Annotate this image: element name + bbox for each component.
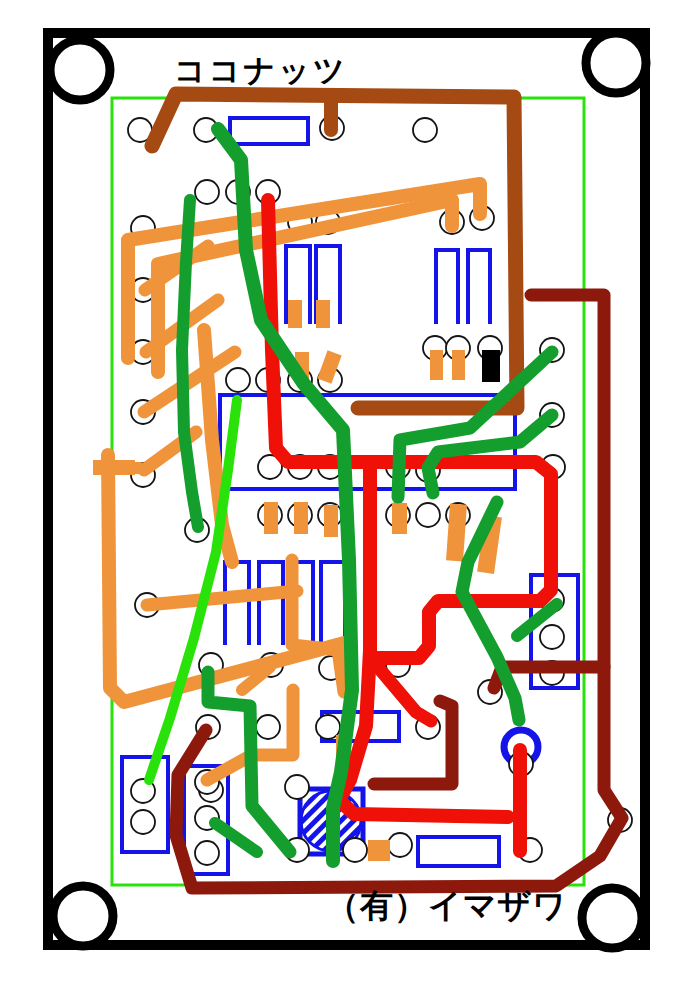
solder-pad (324, 505, 338, 537)
solder-pad (294, 502, 308, 534)
solder-pad (264, 502, 278, 534)
pin-loop (436, 250, 458, 324)
hole (343, 838, 367, 862)
hole (413, 118, 437, 142)
green-wire (215, 823, 257, 852)
component-outline (418, 837, 499, 866)
orange-wire (147, 591, 297, 605)
hole (195, 180, 219, 204)
hole (416, 503, 440, 527)
pin-loop (468, 250, 490, 324)
solder-pad (452, 350, 465, 380)
mounting-hole (50, 40, 110, 100)
orange-wire (292, 560, 344, 692)
board-svg (0, 0, 692, 993)
solder-pad (430, 350, 443, 380)
component-outline (230, 118, 308, 144)
solder-pad (288, 300, 302, 328)
maker-label: （有）イマザワ (326, 884, 567, 929)
hole (540, 625, 564, 649)
pin-loop (259, 562, 283, 645)
mounting-hole (582, 888, 642, 948)
board-title: ココナッツ (174, 50, 348, 92)
hole (131, 810, 155, 834)
solder-pad (368, 840, 390, 861)
hole (256, 715, 280, 739)
solder-pad (392, 503, 407, 534)
solder-pad (316, 300, 330, 328)
hole (195, 841, 219, 865)
component-outline (122, 757, 168, 852)
pin-loop (321, 562, 345, 645)
jumper-pad (482, 350, 500, 382)
mounting-hole (53, 886, 113, 946)
circuit-diagram-page: ココナッツ （有）イマザワ (0, 0, 692, 993)
hole (285, 775, 309, 799)
hole (226, 368, 250, 392)
hole (388, 833, 412, 857)
mounting-hole (586, 33, 646, 93)
